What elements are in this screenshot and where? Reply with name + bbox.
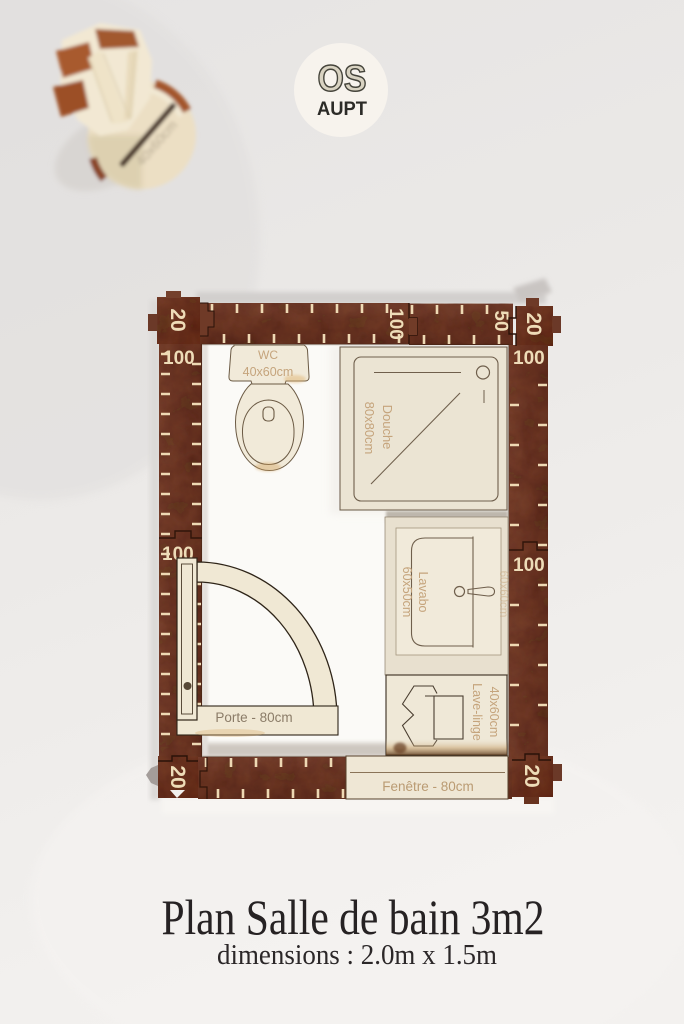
svg-text:OS: OS bbox=[318, 58, 367, 99]
svg-text:50: 50 bbox=[490, 310, 511, 331]
svg-text:Plan Salle de bain 3m2: Plan Salle de bain 3m2 bbox=[162, 889, 545, 945]
svg-text:60x50cm: 60x50cm bbox=[400, 567, 414, 618]
svg-text:100: 100 bbox=[385, 308, 406, 340]
svg-text:20: 20 bbox=[166, 765, 189, 788]
svg-text:100: 100 bbox=[163, 348, 195, 369]
svg-text:WC: WC bbox=[258, 348, 278, 362]
svg-text:20: 20 bbox=[520, 764, 543, 787]
svg-text:100: 100 bbox=[513, 555, 545, 576]
svg-text:AUPT: AUPT bbox=[317, 99, 367, 120]
svg-text:Lave-linge: Lave-linge bbox=[470, 683, 484, 741]
svg-text:Lavabo: Lavabo bbox=[416, 571, 430, 612]
svg-text:Porte - 80cm: Porte - 80cm bbox=[215, 710, 292, 725]
svg-text:20: 20 bbox=[166, 308, 189, 331]
svg-text:80x80cm: 80x80cm bbox=[362, 402, 377, 455]
svg-text:dimensions : 2.0m x 1.5m: dimensions : 2.0m x 1.5m bbox=[217, 940, 497, 971]
svg-text:100: 100 bbox=[513, 348, 545, 369]
svg-text:40x60cm: 40x60cm bbox=[487, 687, 501, 738]
svg-text:20: 20 bbox=[522, 312, 545, 335]
svg-text:Douche: Douche bbox=[380, 405, 395, 450]
svg-text:60x60cm: 60x60cm bbox=[497, 571, 509, 618]
svg-text:Fenêtre - 80cm: Fenêtre - 80cm bbox=[382, 779, 474, 794]
